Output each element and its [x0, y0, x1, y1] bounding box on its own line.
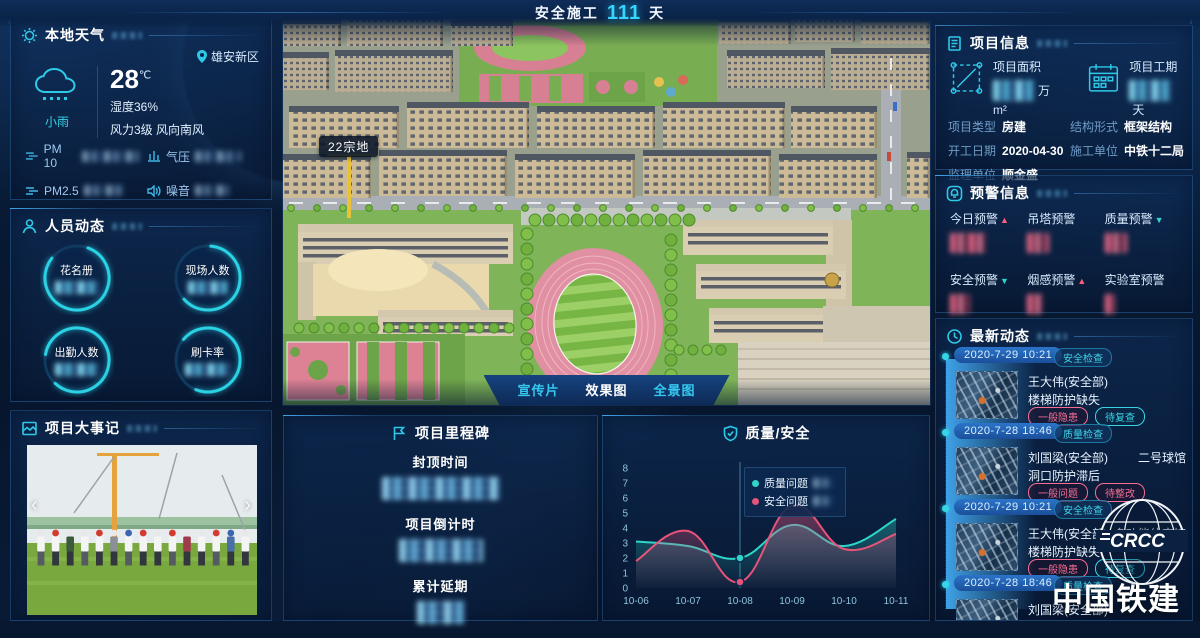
campus-render — [283, 12, 930, 405]
trend-down-icon: ▼ — [1155, 215, 1164, 225]
weather-condition: 小雨 — [25, 113, 89, 130]
svg-text:10-10: 10-10 — [831, 596, 857, 607]
timeline-dot — [942, 353, 949, 360]
blurred-value — [82, 151, 139, 162]
milestone-countdown: 项目倒计时 — [284, 514, 597, 562]
location-name: 雄安新区 — [211, 48, 259, 65]
alert-today: 今日预警▲ — [950, 210, 1027, 253]
blurred-value — [55, 363, 99, 376]
timeline-dot — [942, 505, 949, 512]
chart-tooltip: 质量问题 安全问题 — [744, 467, 846, 517]
stat-label: 出勤人数 — [55, 344, 99, 360]
alert-lab: 实验室预警 — [1105, 271, 1182, 314]
top-banner: 安全施工 111 天 — [0, 0, 1200, 26]
personnel-panel: 人员动态 花名册 现场人数 出勤人数 刷卡率 — [10, 208, 272, 402]
banner-label: 安全施工 — [535, 3, 599, 23]
speaker-icon — [147, 185, 161, 197]
dashboard-root: { "banner": {"prefix": "安全施工", "days": "… — [0, 0, 1200, 621]
weather-metrics: PM 10 气压 PM2.5 噪音 — [25, 142, 261, 199]
blurred-value — [188, 281, 228, 294]
calendar-icon — [1085, 58, 1122, 98]
temperature-unit: ℃ — [139, 69, 151, 81]
panel-title: 项目里程碑 — [415, 423, 490, 443]
metric-label: 气压 — [166, 148, 190, 165]
blurred-value — [950, 294, 970, 314]
metric-label: PM 10 — [44, 142, 78, 170]
alert-safety: 安全预警▼ — [950, 271, 1027, 314]
update-person: 王大伟(安全部) — [1028, 525, 1108, 542]
updates-panel: 最新动态 2020-7-29 10:21 安全检查 王大伟(安全部) 楼梯防护缺… — [935, 318, 1193, 621]
milestone-label: 项目倒计时 — [284, 514, 597, 533]
blurred-value — [195, 151, 241, 162]
svg-text:2: 2 — [622, 554, 628, 565]
legend-quality: 质量问题 — [764, 475, 808, 491]
panel-title: 人员动态 — [45, 216, 105, 236]
svg-text:7: 7 — [622, 479, 628, 490]
haze-icon — [25, 185, 39, 197]
personnel-stats: 花名册 现场人数 出勤人数 刷卡率 — [11, 241, 273, 397]
svg-text:6: 6 — [622, 494, 628, 505]
stat-label: 项目面积 — [993, 58, 1059, 75]
metric-noise: 噪音 — [147, 182, 261, 199]
update-location: 二号球馆 — [1138, 449, 1186, 466]
alarm-bell-icon — [946, 185, 963, 202]
alert-crane: 吊塔预警 — [1027, 210, 1104, 253]
quality-safety-chart[interactable]: 01234567810-0610-0710-0810-0910-1010-11 — [603, 416, 931, 622]
alerts-grid: 今日预警▲ 吊塔预警 质量预警▼ 安全预警▼ 烟感预警▲ 实验室预警 — [950, 210, 1182, 314]
stat-label: 项目工期 — [1129, 58, 1182, 75]
blurred-value — [813, 496, 833, 506]
location-pin-icon — [197, 50, 207, 63]
blurred-value — [1027, 233, 1049, 253]
metric-label: 噪音 — [166, 182, 190, 199]
stat-roster: 花名册 — [40, 241, 114, 315]
blurred-value — [1105, 294, 1115, 314]
update-item[interactable]: 2020-7-28 18:46 质量检查 刘国梁(安全部)二号球馆 洞口防护滞后… — [936, 423, 1193, 499]
update-thumbnail — [956, 371, 1018, 419]
update-person: 刘国梁(安全部) — [1028, 601, 1108, 618]
blurred-value — [1129, 80, 1171, 101]
blurred-value — [185, 363, 231, 376]
update-person: 王大伟(安全部) — [1028, 373, 1108, 390]
quality-safety-panel: 质量/安全 01234567810-0610-0710-0810-0910-10… — [602, 415, 930, 621]
blurred-value — [84, 185, 124, 196]
svg-text:0: 0 — [622, 584, 628, 595]
blurred-value — [55, 281, 99, 294]
svg-text:10-08: 10-08 — [727, 596, 753, 607]
milestone-delay: 累计延期 — [284, 576, 597, 624]
plot-label: 22宗地 — [319, 136, 378, 157]
photo-prev-button[interactable]: ‹ — [31, 495, 38, 515]
timeline-dot — [942, 429, 949, 436]
header-line — [1074, 193, 1182, 194]
haze-icon — [25, 150, 39, 162]
area-icon — [948, 58, 985, 98]
blurred-value — [382, 477, 500, 500]
update-category: 质量检查 — [1054, 576, 1112, 595]
panel-title: 项目信息 — [970, 33, 1030, 53]
stat-onsite-count: 现场人数 — [171, 241, 245, 315]
stat-attendance: 出勤人数 — [40, 323, 114, 397]
update-date: 2020-7-28 18:46 — [954, 423, 1062, 439]
legend-dot-quality — [752, 480, 759, 487]
stat-swipe-rate: 刷卡率 — [171, 323, 245, 397]
metric-pressure: 气压 — [147, 142, 261, 170]
milestone-list: 封顶时间 项目倒计时 累计延期 — [284, 452, 597, 638]
field-structure: 结构形式框架结构 — [1070, 118, 1186, 135]
svg-text:1: 1 — [622, 569, 628, 580]
header-line — [164, 428, 261, 429]
stat-label: 花名册 — [60, 262, 93, 278]
event-photo — [27, 445, 257, 615]
update-person: 刘国梁(安全部) — [1028, 449, 1108, 466]
metric-pm25: PM2.5 — [25, 182, 139, 199]
sun-icon — [21, 27, 38, 44]
photo-icon — [21, 420, 38, 437]
blurred-value — [1027, 294, 1043, 314]
flag-icon — [391, 425, 408, 442]
photo-next-button[interactable]: › — [244, 495, 251, 515]
blurred-value — [1105, 233, 1127, 253]
update-issue: 楼梯防护缺失 — [1028, 543, 1100, 560]
field-contractor: 施工单位中铁十二局 — [1070, 142, 1186, 159]
header-decoration — [112, 223, 142, 230]
panel-title: 本地天气 — [45, 25, 105, 45]
stat-label: 刷卡率 — [191, 344, 224, 360]
blurred-value — [813, 478, 833, 488]
svg-text:3: 3 — [622, 539, 628, 550]
milestone-label: 累计延期 — [284, 576, 597, 595]
alert-smoke: 烟感预警▲ — [1027, 271, 1104, 314]
alert-quality: 质量预警▼ — [1105, 210, 1182, 253]
sports-courts — [283, 334, 465, 405]
header-decoration — [127, 425, 157, 432]
trend-up-icon: ▲ — [1077, 276, 1086, 286]
trend-up-icon: ▲ — [1000, 215, 1009, 225]
blurred-value — [993, 80, 1035, 101]
milestone-label: 封顶时间 — [284, 452, 597, 471]
temperature-value: 28 — [110, 64, 139, 94]
update-item[interactable]: 2020-7-28 18:46 质量检查 刘国梁(安全部) — [936, 575, 1193, 621]
header-line — [1074, 43, 1182, 44]
update-date: 2020-7-29 10:21 — [954, 499, 1062, 515]
stat-project-duration: 项目工期 天 — [1085, 58, 1183, 119]
tab-rendering[interactable]: 效果图 — [585, 380, 627, 399]
legend-safety: 安全问题 — [764, 493, 808, 509]
project-info-panel: 项目信息 项目面积 万m² 项目工期 天 项目类型房建 结构形式框架结构 开工日… — [935, 25, 1193, 170]
field-project-type: 项目类型房建 — [948, 118, 1070, 135]
wind: 风力3级 风向南风 — [110, 121, 204, 138]
person-icon — [21, 218, 38, 235]
header-decoration — [1037, 333, 1067, 340]
location-badge: 雄安新区 — [197, 48, 259, 65]
stat-unit: 天 — [1132, 103, 1144, 117]
panel-title: 预警信息 — [970, 183, 1030, 203]
metric-pm10: PM 10 — [25, 142, 139, 170]
update-category: 质量检查 — [1054, 424, 1112, 443]
metric-label: PM2.5 — [44, 184, 79, 198]
header-decoration — [112, 32, 142, 39]
rain-cloud-icon — [31, 66, 83, 106]
milestone-photo-panel: 项目大事记 ‹ › — [10, 410, 272, 621]
svg-text:4: 4 — [622, 524, 628, 535]
update-thumbnail — [956, 599, 1018, 621]
clock-icon — [946, 328, 963, 345]
weather-panel: 本地天气 雄安新区 小雨 28℃ 湿度36% 风力3级 风向南风 PM 10 — [10, 17, 272, 200]
tab-panorama[interactable]: 全景图 — [654, 380, 696, 399]
svg-text:8: 8 — [622, 464, 628, 475]
safe-days-count: 111 — [607, 2, 641, 25]
update-date: 2020-7-29 10:21 — [954, 347, 1062, 363]
header-line — [149, 35, 261, 36]
update-location: 多功能体育馆 — [1114, 525, 1186, 542]
svg-text:10-11: 10-11 — [884, 596, 909, 607]
update-issue: 洞口防护滞后 — [1028, 467, 1100, 484]
svg-text:10-09: 10-09 — [779, 596, 805, 607]
legend-dot-safety — [752, 498, 759, 505]
header-decoration — [1037, 40, 1067, 47]
project-stats: 项目面积 万m² 项目工期 天 — [948, 58, 1182, 119]
timeline-dot — [942, 581, 949, 588]
project-fields: 项目类型房建 结构形式框架结构 开工日期2020-04-30 施工单位中铁十二局… — [948, 118, 1186, 183]
stat-label: 现场人数 — [186, 262, 230, 278]
field-start-date: 开工日期2020-04-30 — [948, 142, 1070, 159]
update-category: 安全检查 — [1054, 348, 1112, 367]
tab-promo-video[interactable]: 宣传片 — [517, 380, 559, 399]
banner-unit: 天 — [649, 3, 665, 23]
panel-title: 项目大事记 — [45, 418, 120, 438]
svg-text:10-07: 10-07 — [675, 596, 701, 607]
header-line — [149, 226, 261, 227]
header-decoration — [1037, 190, 1067, 197]
blurred-value — [195, 185, 229, 196]
gauge-icon — [147, 150, 161, 162]
update-item[interactable]: 2020-7-29 10:21 安全检查 王大伟(安全部)多功能体育馆 楼梯防护… — [936, 499, 1193, 575]
site-3d-view[interactable]: 22宗地 宣传片 效果图 全景图 — [283, 12, 930, 405]
update-thumbnail — [956, 447, 1018, 495]
svg-text:10-06: 10-06 — [623, 596, 649, 607]
milestone-panel: 项目里程碑 封顶时间 项目倒计时 累计延期 — [283, 415, 598, 621]
update-thumbnail — [956, 523, 1018, 571]
alerts-panel: 预警信息 今日预警▲ 吊塔预警 质量预警▼ 安全预警▼ 烟感预警▲ 实验室预警 — [935, 175, 1193, 313]
trend-down-icon: ▼ — [1000, 276, 1009, 286]
weather-current: 小雨 28℃ 湿度36% 风力3级 风向南风 — [25, 66, 204, 138]
panel-title: 最新动态 — [970, 326, 1030, 346]
document-icon — [946, 35, 963, 52]
update-issue: 楼梯防护缺失 — [1028, 391, 1100, 408]
humidity: 湿度36% — [110, 98, 204, 115]
view-mode-tabs: 宣传片 效果图 全景图 — [483, 375, 729, 405]
update-date: 2020-7-28 18:46 — [954, 575, 1062, 591]
update-item[interactable]: 2020-7-29 10:21 安全检查 王大伟(安全部) 楼梯防护缺失 一般隐… — [936, 347, 1193, 423]
blurred-value — [399, 539, 483, 562]
blurred-value — [950, 233, 986, 253]
stat-project-area: 项目面积 万m² — [948, 58, 1059, 119]
header-line — [1074, 336, 1182, 337]
svg-text:5: 5 — [622, 509, 628, 520]
milestone-topping-time: 封顶时间 — [284, 452, 597, 500]
update-category: 安全检查 — [1054, 500, 1112, 519]
